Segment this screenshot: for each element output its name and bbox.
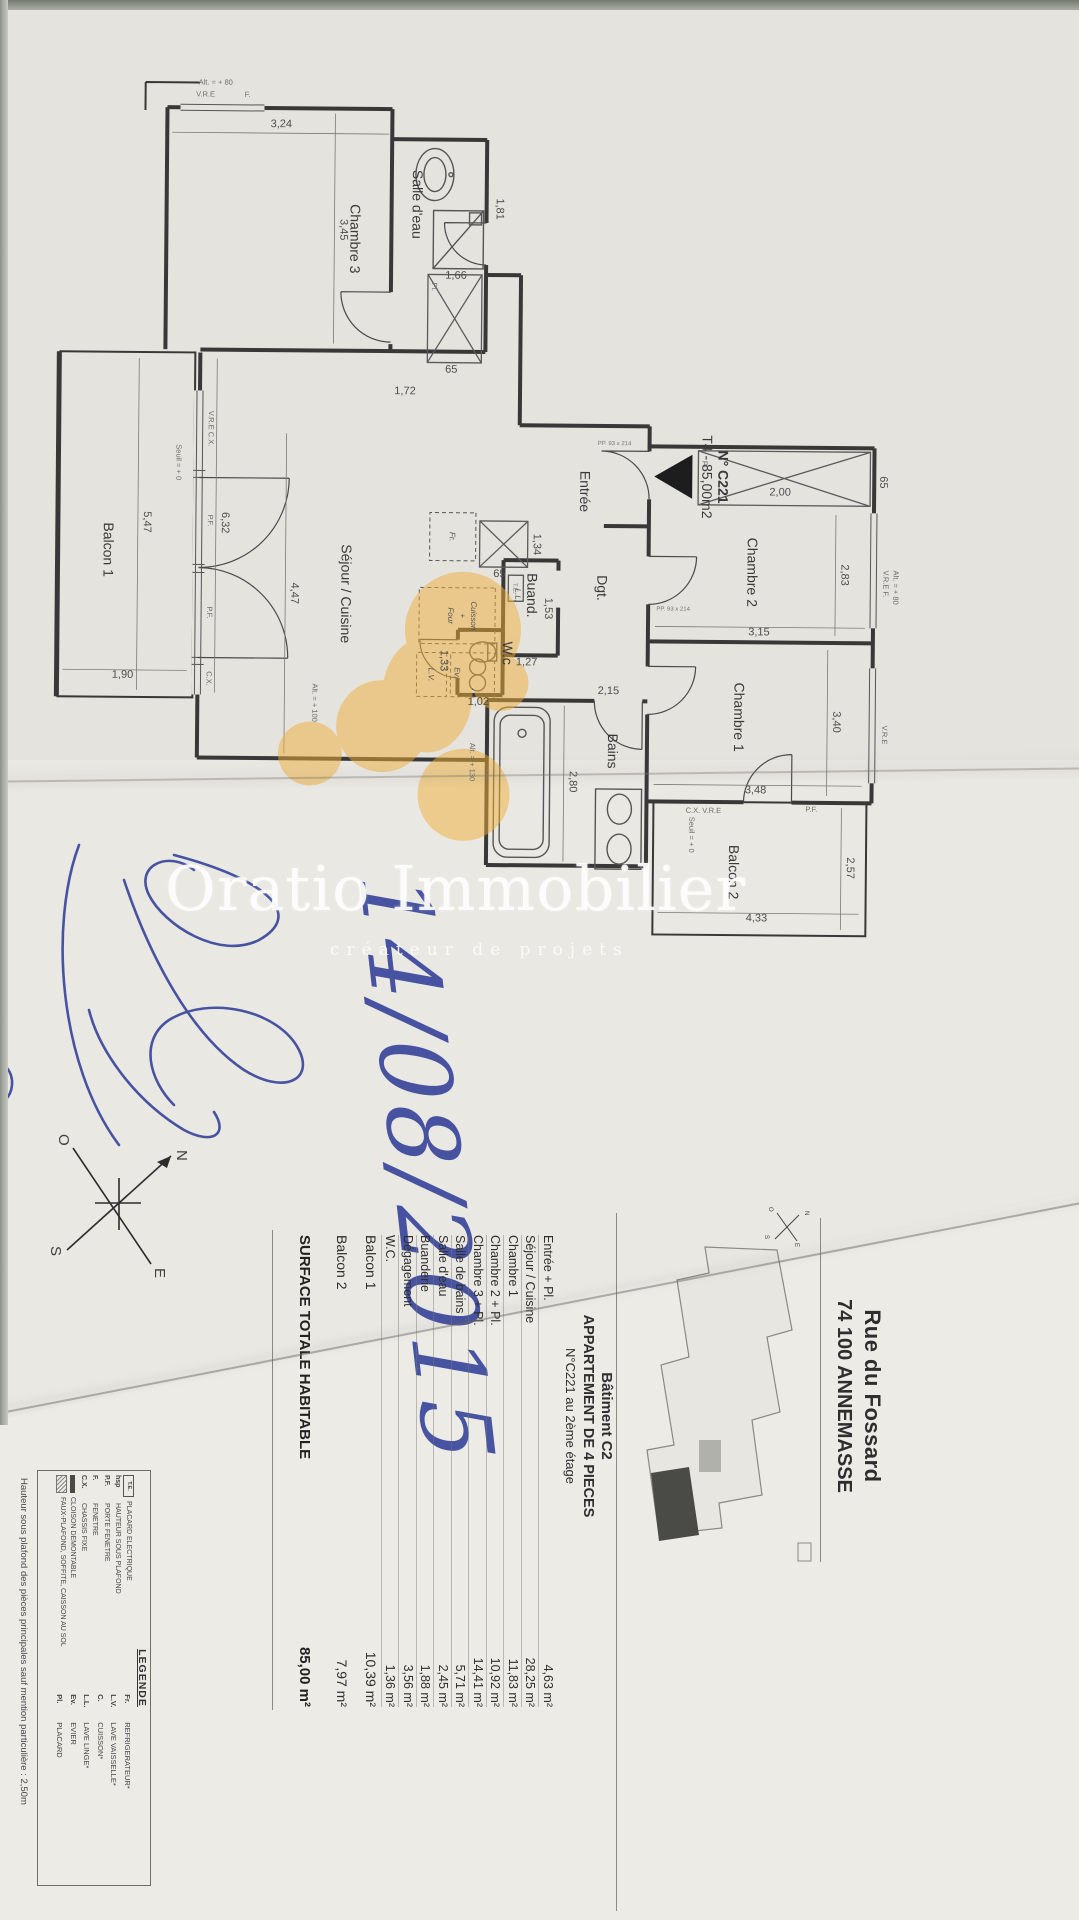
site-compass-e: E — [793, 1243, 799, 1247]
room-name: Salle de bains — [453, 1235, 467, 1314]
divider — [616, 1213, 617, 1911]
balcony-row: Balcon 27,97 m² — [321, 1235, 350, 1707]
address-line1: Rue du Fossard — [859, 1228, 885, 1564]
table-row: Séjour / Cuisine28,25 m² — [521, 1235, 539, 1707]
table-row: Buanderie1,88 m² — [416, 1235, 434, 1707]
legend-label: LAVE VAISSELLE* — [107, 1722, 121, 1786]
room-area: 2,45 m² — [436, 1665, 450, 1707]
legend-abbr: C. — [94, 1694, 108, 1718]
room-name: Salle d'eau — [436, 1235, 450, 1296]
building-name: Bâtiment C2 — [598, 1248, 615, 1584]
compass-o: O — [55, 1134, 72, 1146]
areas-table: Entrée + Pl.4,63 m² Séjour / Cuisine28,2… — [381, 1235, 556, 1707]
balcony-area: 7,97 m² — [321, 1660, 350, 1707]
balcony-name: Balcon 2 — [321, 1235, 350, 1289]
agency-tagline: créateur de projets — [330, 940, 629, 960]
legend-abbr: Pl. — [53, 1694, 67, 1718]
table-row: Chambre 2 + Pl.10,92 m² — [486, 1235, 504, 1707]
legend-label: CLOISON DEMONTABLE — [67, 1497, 78, 1578]
site-compass-s: S — [763, 1235, 769, 1239]
address-block: Rue du Fossard 74 100 ANNEMASSE — [832, 1228, 885, 1564]
legend-abbr: Ev. — [67, 1694, 81, 1718]
total-area: 85,00 m² — [296, 1647, 313, 1707]
room-area: 28,25 m² — [523, 1658, 537, 1707]
partition-bar-icon — [70, 1475, 75, 1493]
total-label: SURFACE TOTALE HABITABLE — [296, 1235, 313, 1459]
legend-label: FAUX-PLAFOND, SOFFITE, CAISSON AU SOL — [57, 1497, 66, 1647]
room-name: Buanderie — [418, 1235, 432, 1292]
legend-abbr: L.L. — [80, 1694, 94, 1718]
divider — [820, 1218, 821, 1562]
room-name: W.C. — [383, 1235, 397, 1262]
floor-plan-sheet: N° C221 T4 - 85,00m2 Entrée Séjour / Cui… — [0, 0, 1079, 1920]
legend-box: LEGENDE T.E.PLACARD ELECTRIQUE hspHAUTEU… — [37, 1470, 151, 1886]
legend-title: LEGENDE — [136, 1475, 148, 1881]
te-box-icon: T.E. — [123, 1475, 134, 1497]
legend-label: REFRIGERATEUR* — [121, 1722, 135, 1789]
room-area: 5,71 m² — [453, 1665, 467, 1707]
table-row: Salle de bains5,71 m² — [451, 1235, 469, 1707]
legend-label: PORTE FENETRE — [100, 1503, 111, 1562]
compass-n: N — [173, 1150, 190, 1161]
legend-label: EVIER — [67, 1722, 81, 1745]
room-name: Chambre 3 + Pl. — [471, 1235, 485, 1326]
legend-abbr: hsp — [112, 1475, 123, 1499]
unit-ref: N°C221 au 2ème étage — [563, 1248, 578, 1584]
room-area: 1,36 m² — [383, 1665, 397, 1707]
room-name: Chambre 2 + Pl. — [488, 1235, 502, 1326]
legend-label: CHASSIS FIXE — [78, 1503, 89, 1551]
ceiling-height-note: Hauteur sous plafond des pièces principa… — [18, 1478, 29, 1914]
table-row: Dégagement3,56 m² — [399, 1235, 417, 1707]
legend-abbr: F. — [89, 1475, 100, 1499]
room-area: 1,88 m² — [418, 1665, 432, 1707]
compass-s: S — [47, 1246, 64, 1256]
legend-label: CUISSON* — [94, 1722, 108, 1759]
total-surface-row: SURFACE TOTALE HABITABLE 85,00 m² — [296, 1235, 313, 1707]
room-area: 3,56 m² — [401, 1665, 415, 1707]
soffit-hatch-icon — [56, 1475, 67, 1493]
legend-label: LAVE LINGE* — [80, 1722, 94, 1768]
compass-rose: N E S O — [31, 1118, 201, 1303]
table-row: Chambre 3 + Pl.14,41 m² — [469, 1235, 487, 1707]
legend-label: FENETRE — [89, 1503, 100, 1536]
balcony-area: 10,39 m² — [350, 1652, 379, 1707]
legend-left-column: T.E.PLACARD ELECTRIQUE hspHAUTEUR SOUS P… — [53, 1475, 134, 1694]
balcony-name: Balcon 1 — [350, 1235, 379, 1289]
room-area: 10,92 m² — [488, 1658, 502, 1707]
legend-label: PLACARD ELECTRIQUE — [123, 1501, 134, 1581]
site-compass-n: N — [803, 1211, 809, 1215]
legend-abbr: C.X. — [78, 1475, 89, 1499]
table-row: W.C.1,36 m² — [381, 1235, 399, 1707]
legend-abbr: P.F. — [100, 1475, 111, 1499]
legend-label: HAUTEUR SOUS PLAFOND — [112, 1503, 123, 1594]
balconies-rows: Balcon 110,39 m² Balcon 27,97 m² — [321, 1235, 379, 1707]
legend-right-column: Fr.REFRIGERATEUR* L.V.LAVE VAISSELLE* C.… — [53, 1694, 134, 1881]
scan-edge-left — [0, 0, 8, 1425]
room-area: 11,83 m² — [506, 1659, 520, 1707]
divider — [272, 1230, 273, 1710]
room-area: 4,63 m² — [541, 1665, 555, 1707]
table-row: Chambre 111,83 m² — [504, 1235, 522, 1707]
balcony-row: Balcon 110,39 m² — [350, 1235, 379, 1707]
room-area: 14,41 m² — [471, 1658, 485, 1707]
legend-abbr: L.V. — [107, 1694, 121, 1718]
agency-watermark: Oratio Immobilier — [165, 852, 746, 925]
compass-e: E — [151, 1268, 168, 1278]
room-name: Entrée + Pl. — [541, 1235, 555, 1301]
table-row: Salle d'eau2,45 m² — [434, 1235, 452, 1707]
site-compass-o: O — [767, 1207, 773, 1212]
room-name: Dégagement — [401, 1235, 415, 1307]
address-line2: 74 100 ANNEMASSE — [832, 1228, 855, 1564]
legend-label: PLACARD — [53, 1722, 67, 1757]
scan-edge-top — [0, 0, 1079, 10]
legend-abbr: Fr. — [121, 1694, 135, 1718]
room-name: Chambre 1 — [506, 1235, 520, 1297]
